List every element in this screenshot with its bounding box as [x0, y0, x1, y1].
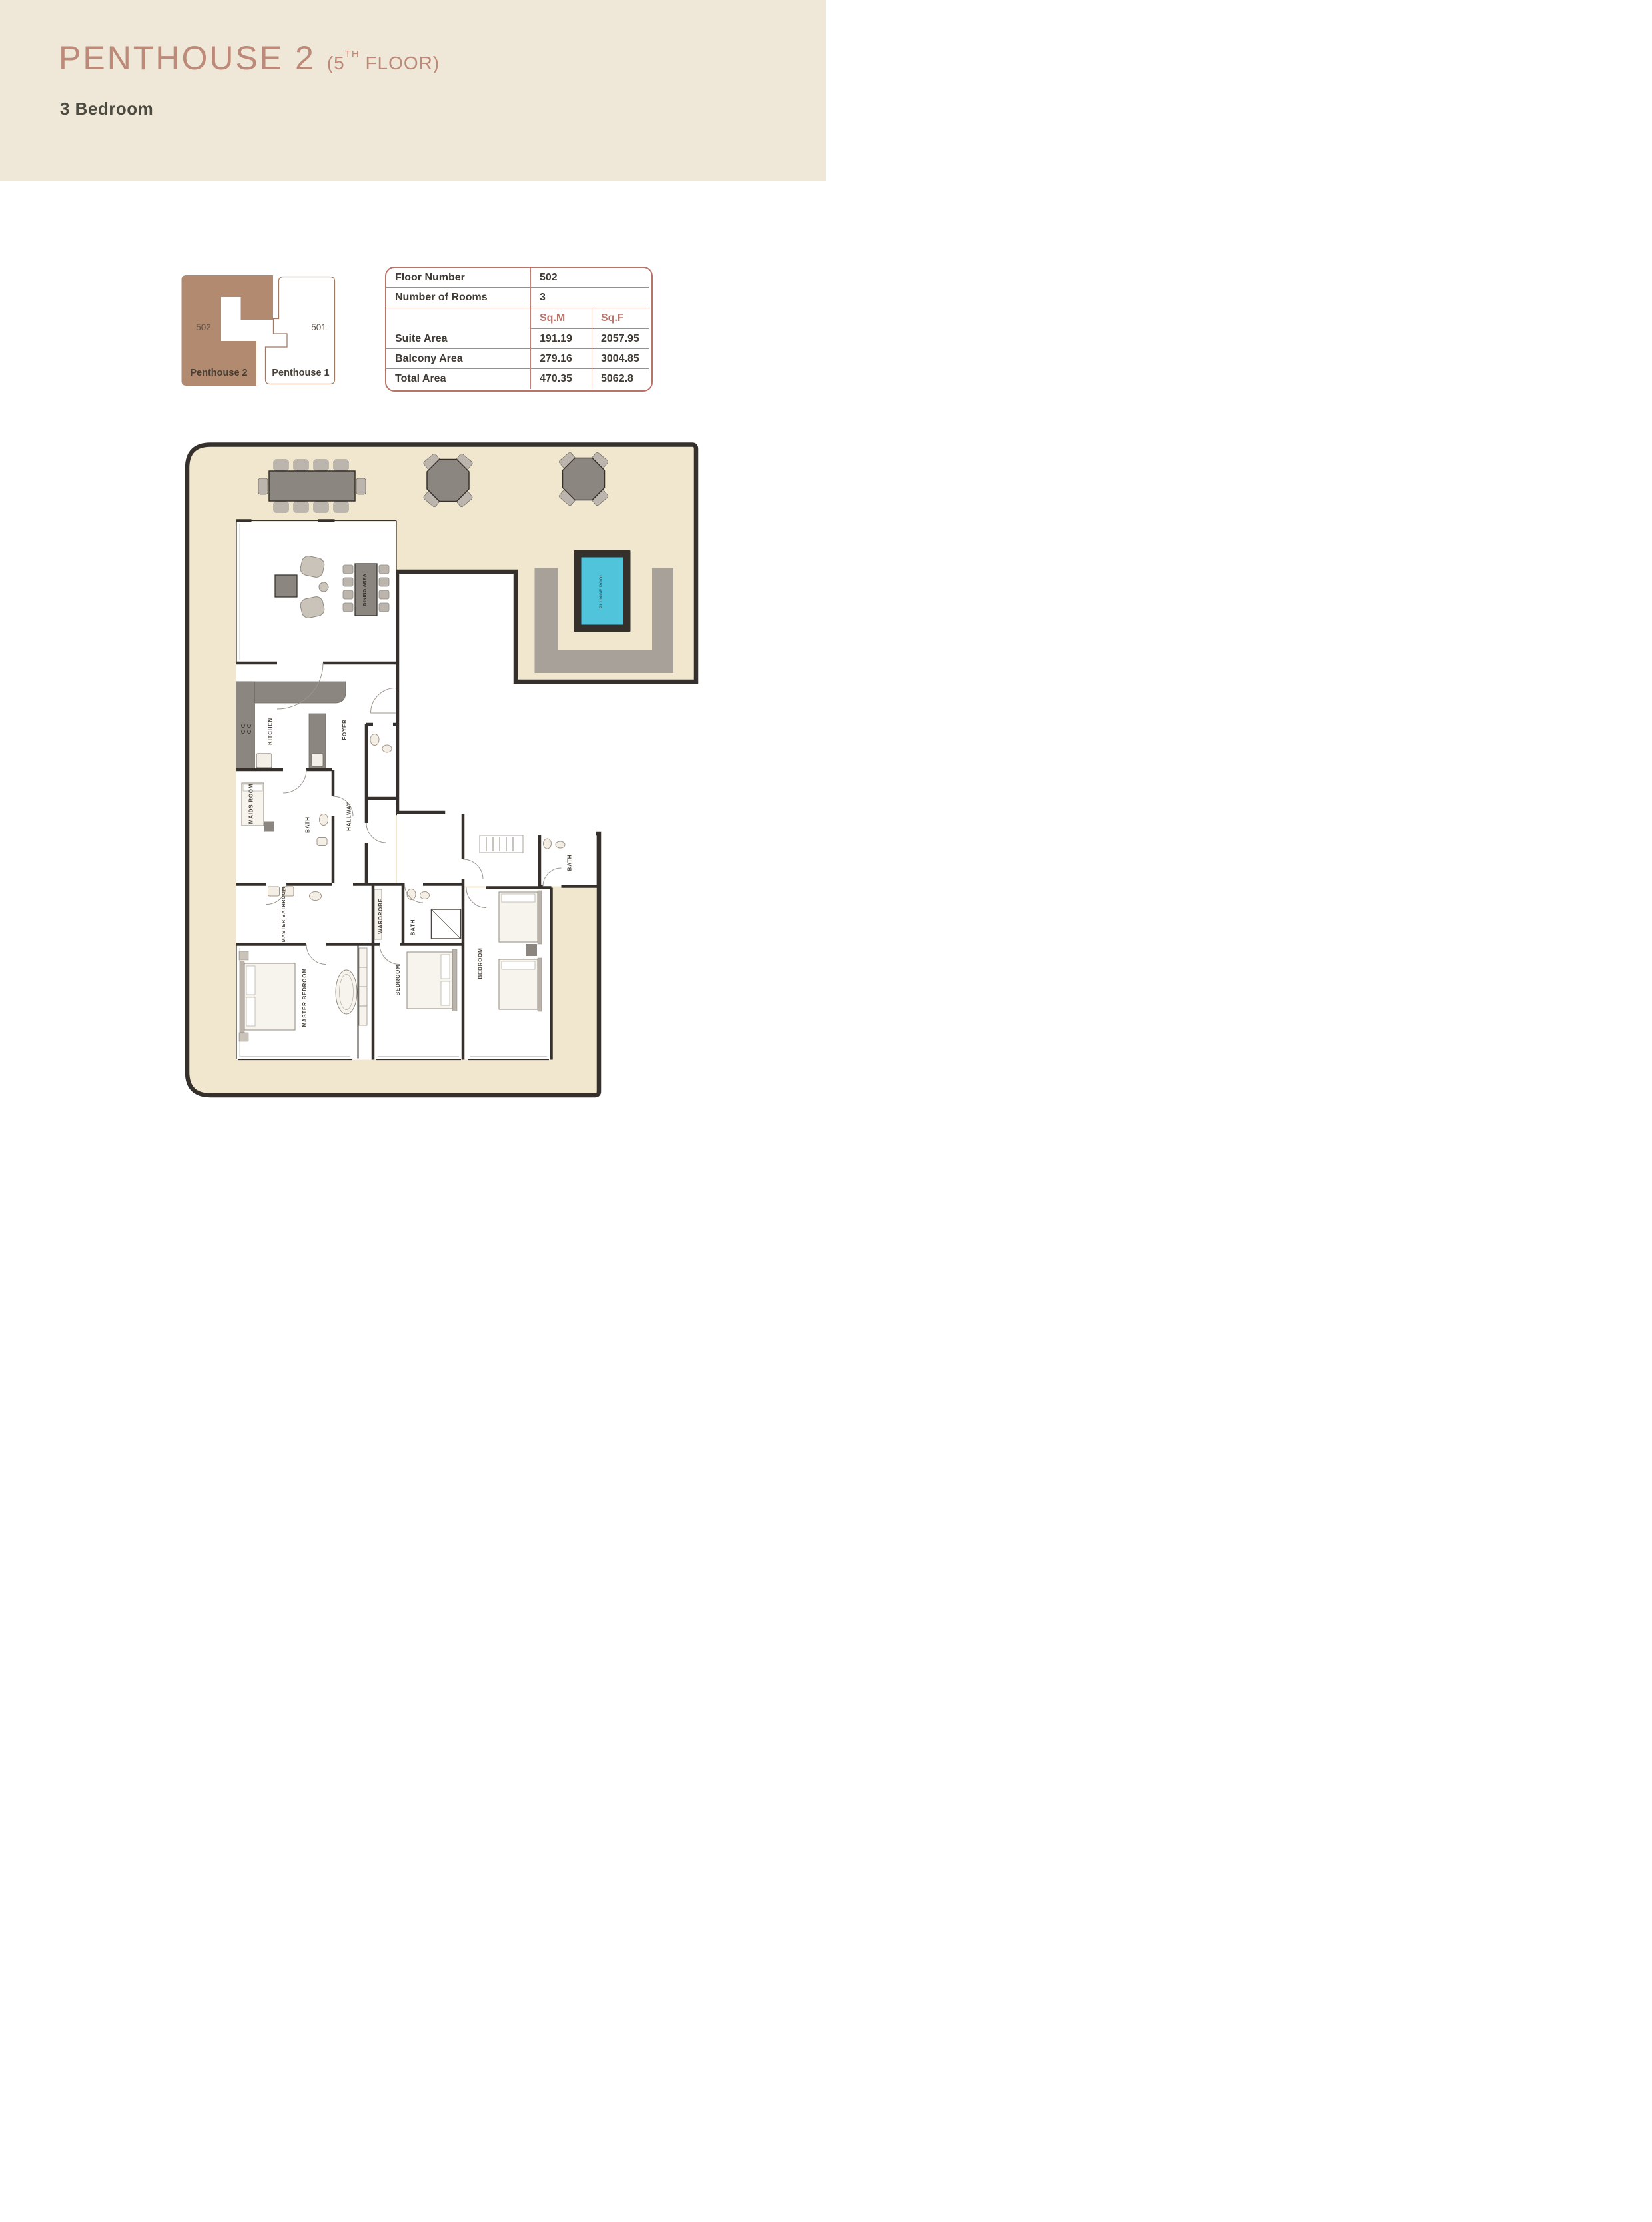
pillow — [502, 961, 535, 969]
maid-bath-label: BATH — [305, 816, 311, 833]
balcony-area-sqf: 3004.85 — [592, 349, 649, 369]
kitchen-counter-left — [236, 682, 255, 769]
mid-bath-label: BATH — [410, 919, 416, 936]
page-title: PENTHOUSE 2 (5TH FLOOR) — [59, 39, 440, 77]
headboard — [240, 961, 244, 1033]
outdoor-round-table-2 — [558, 452, 609, 506]
nightstand — [239, 1033, 248, 1041]
island-sink-icon — [312, 754, 323, 766]
plunge-pool-label: PLUNGE POOL — [599, 574, 604, 609]
outdoor-table — [269, 471, 355, 501]
floor-note-close: FLOOR) — [360, 53, 440, 73]
table-row: Balcony Area 279.16 3004.85 — [386, 349, 651, 369]
rooms-label: Number of Rooms — [386, 288, 530, 308]
right-bedroom-label: BEDROOM — [478, 947, 484, 979]
sqm-header: Sq.M — [530, 308, 592, 329]
pillow — [441, 955, 450, 979]
header-band: PENTHOUSE 2 (5TH FLOOR) 3 Bedroom — [0, 0, 826, 181]
kitchen-sink-icon — [256, 754, 272, 768]
key-plan: 502 Penthouse 2 501 Penthouse 1 — [168, 261, 354, 390]
keyplan-penthouse1-label: Penthouse 1 — [272, 368, 329, 378]
toilet-icon — [320, 814, 328, 826]
sink-icon — [382, 745, 392, 752]
suite-area-label: Suite Area — [386, 329, 530, 349]
wardrobe-label: WARDROBE — [378, 898, 384, 934]
keyplan-penthouse2-label: Penthouse 2 — [190, 368, 247, 378]
pillow — [441, 981, 450, 1005]
suite-area-sqm: 191.19 — [530, 329, 592, 349]
total-area-label: Total Area — [386, 369, 530, 389]
headboard — [538, 958, 542, 1011]
table-row: Suite Area 191.19 2057.95 — [386, 329, 651, 349]
hallway-label: HALLWAY — [346, 802, 352, 831]
total-area-sqf: 5062.8 — [592, 369, 649, 389]
corridor-bath-floor — [397, 814, 596, 887]
sink-icon — [317, 838, 327, 846]
right-bath-label: BATH — [567, 855, 573, 871]
maids-room-label: MAIDS ROOM — [248, 784, 254, 824]
unit-info-table: Floor Number 502 Number of Rooms 3 Sq.M … — [385, 267, 653, 392]
toilet-icon — [544, 839, 552, 849]
floor-number-label: Floor Number — [386, 268, 530, 288]
pillow — [502, 894, 535, 902]
sink-icon — [420, 892, 430, 899]
pillow — [246, 966, 255, 995]
floor-number-value: 502 — [530, 268, 649, 288]
plunge-pool: PLUNGE POOL — [574, 550, 631, 632]
table-row: Sq.M Sq.F — [386, 308, 651, 329]
nightstand — [239, 951, 248, 960]
master-bedroom-label: MASTER BEDROOM — [302, 968, 308, 1027]
nightstand — [526, 944, 537, 956]
master-bathroom-label: MASTER BATHROOM — [282, 887, 286, 942]
table-row: Floor Number 502 — [386, 268, 651, 288]
dining-area-label: DINING AREA — [363, 574, 368, 606]
outdoor-round-table-1 — [423, 453, 474, 508]
total-area-sqm: 470.35 — [530, 369, 592, 389]
mid-bedroom-label: BEDROOM — [395, 964, 401, 995]
balcony-area-label: Balcony Area — [386, 349, 530, 369]
empty-cell — [386, 308, 530, 329]
floor-note-sup: TH — [345, 49, 360, 60]
foyer-label: FOYER — [342, 719, 348, 740]
headboard — [452, 949, 457, 1011]
bedroom-subtitle: 3 Bedroom — [60, 99, 153, 119]
double-sink-icon — [268, 887, 280, 896]
penthouse-title: PENTHOUSE 2 — [59, 39, 316, 77]
bathtub — [336, 970, 357, 1014]
keyplan-502-number: 502 — [196, 322, 211, 332]
table-row: Number of Rooms 3 — [386, 288, 651, 308]
brochure-page: PENTHOUSE 2 (5TH FLOOR) 3 Bedroom 502 Pe… — [0, 0, 826, 1111]
sqf-header: Sq.F — [592, 308, 649, 329]
keyplan-501-number: 501 — [311, 322, 326, 332]
floor-plan: PLUNGE POOL — [167, 430, 706, 1103]
side-table — [319, 582, 328, 592]
balcony-area-sqm: 279.16 — [530, 349, 592, 369]
coffee-table — [275, 575, 297, 597]
maids-side-table — [264, 822, 274, 832]
rooms-value: 3 — [530, 288, 649, 308]
table-row: Total Area 470.35 5062.8 — [386, 369, 651, 389]
kitchen-label: KITCHEN — [268, 718, 274, 745]
pillow — [246, 997, 255, 1026]
suite-area-sqf: 2057.95 — [592, 329, 649, 349]
headboard — [538, 891, 542, 944]
floor-note-open: (5 — [327, 53, 345, 73]
sink-icon — [310, 892, 322, 901]
toilet-icon — [370, 734, 379, 746]
sink-icon — [556, 841, 565, 848]
